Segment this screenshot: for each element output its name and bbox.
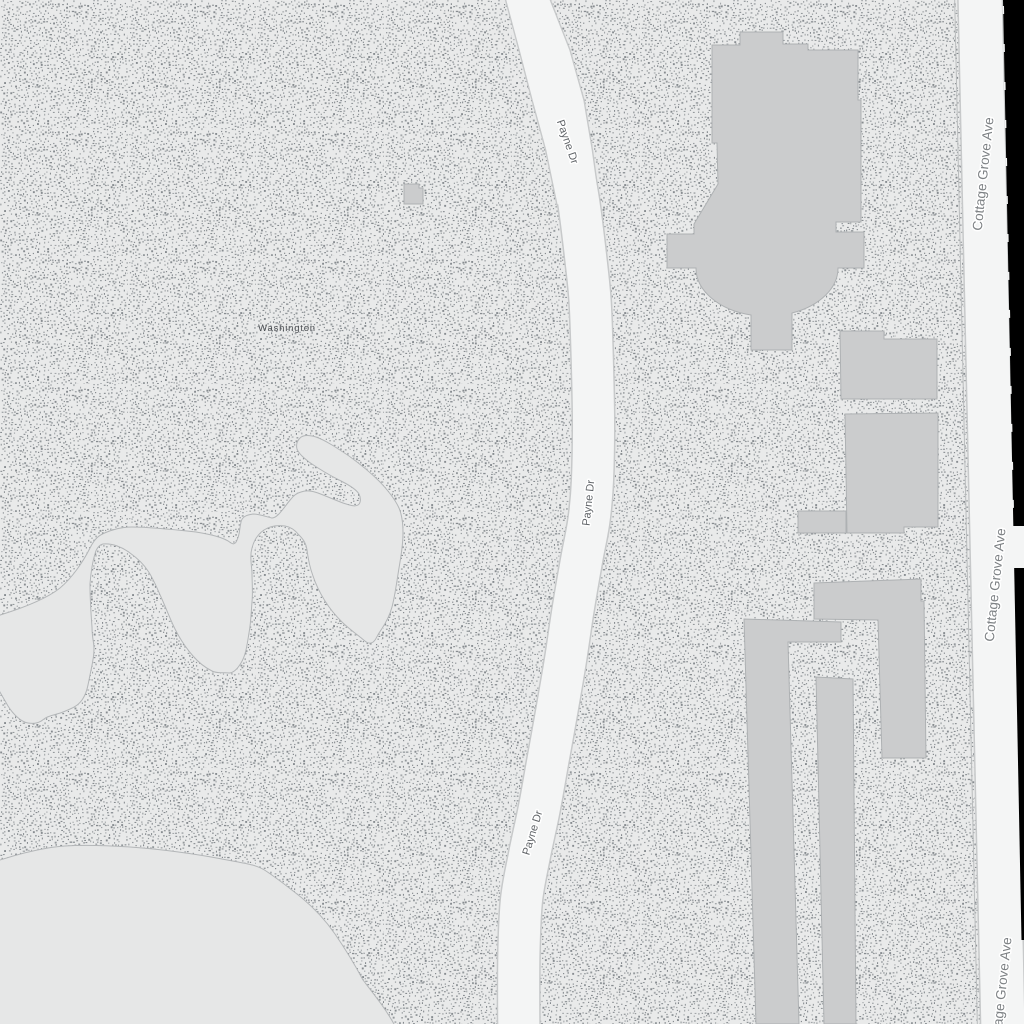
svg-text:Washington: Washington xyxy=(258,323,316,334)
